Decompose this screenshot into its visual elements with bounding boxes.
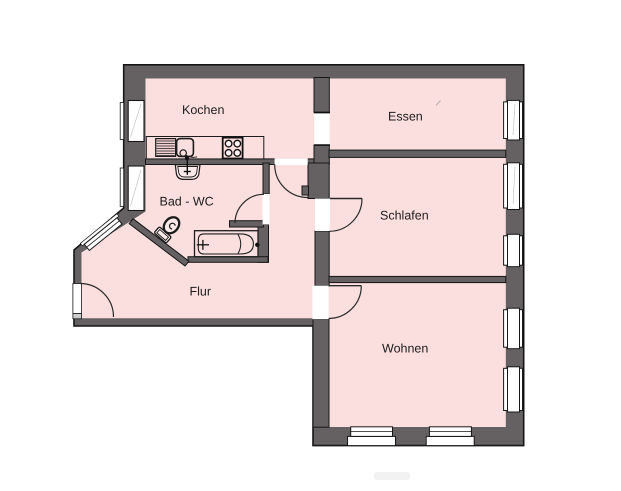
svg-text:Schlafen: Schlafen bbox=[380, 209, 429, 223]
svg-text:Wohnen: Wohnen bbox=[382, 342, 428, 356]
svg-text:Flur: Flur bbox=[190, 285, 212, 299]
svg-text:Bad - WC: Bad - WC bbox=[160, 195, 214, 209]
svg-text:Essen: Essen bbox=[388, 110, 423, 124]
svg-text:Kochen: Kochen bbox=[182, 103, 224, 117]
